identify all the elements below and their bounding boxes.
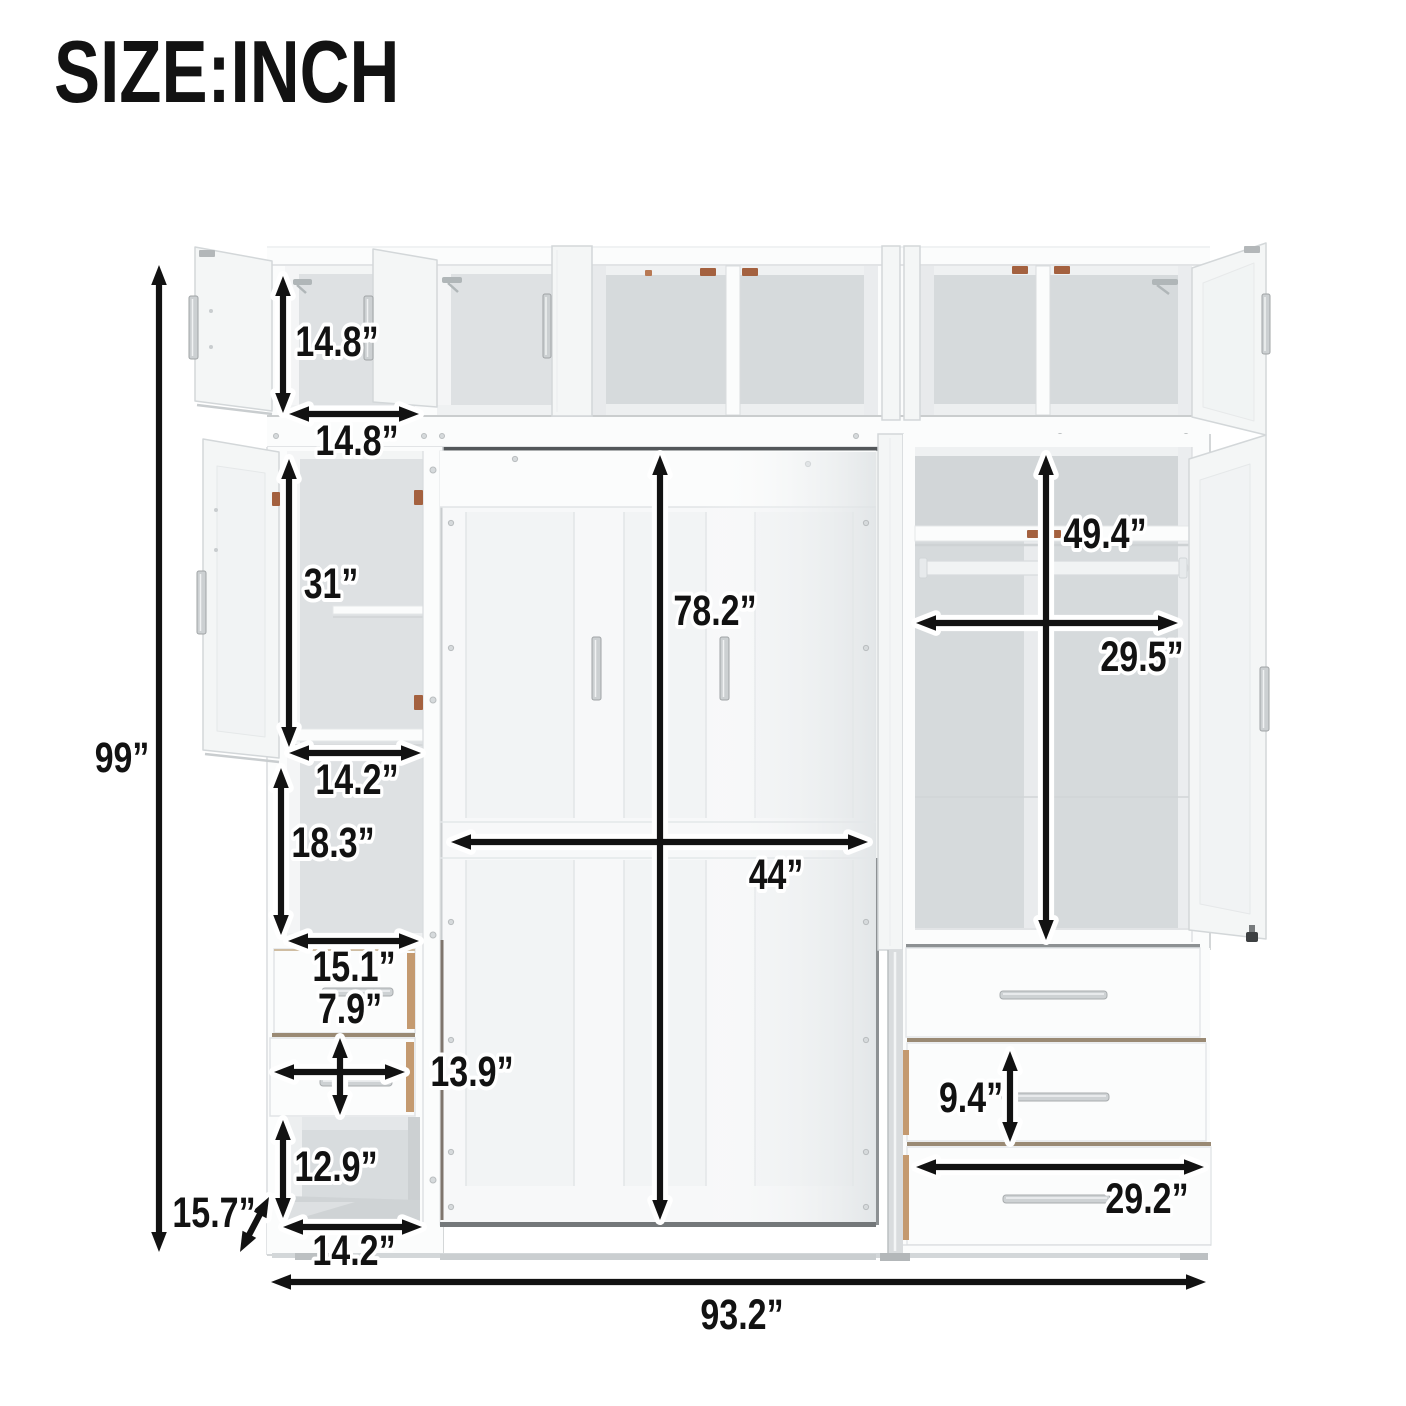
svg-text:29.5”: 29.5” xyxy=(1100,633,1183,681)
svg-text:7.9”: 7.9” xyxy=(318,985,382,1033)
svg-text:9.4”: 9.4” xyxy=(939,1074,1003,1122)
svg-text:44”: 44” xyxy=(749,851,804,899)
svg-text:78.2”: 78.2” xyxy=(673,587,756,635)
svg-text:18.3”: 18.3” xyxy=(291,819,374,867)
svg-text:15.1”: 15.1” xyxy=(312,943,395,991)
svg-text:14.8”: 14.8” xyxy=(315,417,398,465)
svg-text:49.4”: 49.4” xyxy=(1063,510,1146,558)
svg-text:99”: 99” xyxy=(95,734,150,782)
svg-text:12.9”: 12.9” xyxy=(294,1143,377,1191)
svg-text:15.7”: 15.7” xyxy=(172,1189,255,1237)
svg-text:29.2”: 29.2” xyxy=(1105,1175,1188,1223)
svg-text:93.2”: 93.2” xyxy=(700,1291,783,1339)
svg-text:14.2”: 14.2” xyxy=(312,1227,395,1275)
svg-text:31”: 31” xyxy=(304,560,359,608)
svg-text:SIZE:INCH: SIZE:INCH xyxy=(54,22,399,121)
svg-text:13.9”: 13.9” xyxy=(430,1048,513,1096)
svg-text:14.8”: 14.8” xyxy=(295,318,378,366)
svg-text:14.2”: 14.2” xyxy=(315,756,398,804)
